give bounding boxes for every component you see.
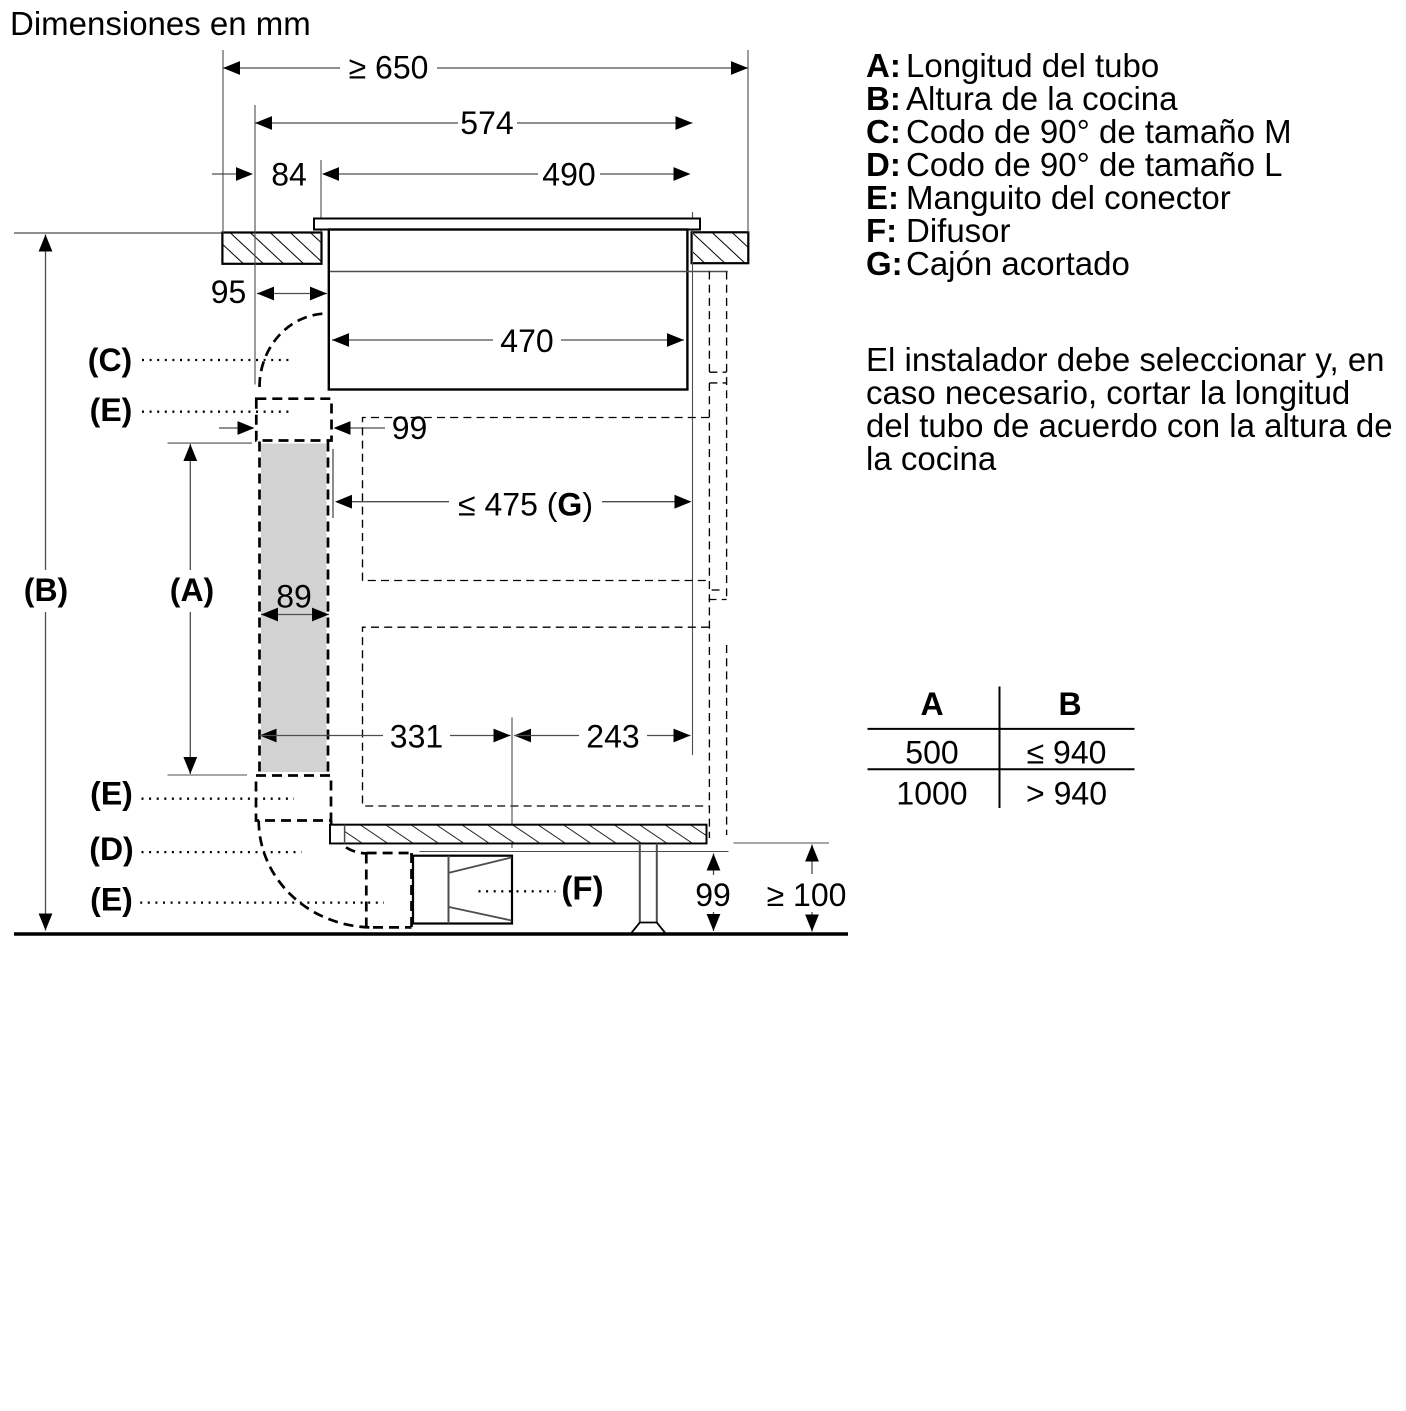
svg-text:Codo de 90° de tamaño M: Codo de 90° de tamaño M: [906, 113, 1292, 150]
svg-text:84: 84: [271, 157, 307, 193]
svg-text:≥ 650: ≥ 650: [349, 50, 429, 86]
svg-text:≤ 940: ≤ 940: [1027, 735, 1107, 771]
svg-text:Longitud del tubo: Longitud del tubo: [906, 47, 1159, 84]
svg-text:(E): (E): [90, 882, 133, 918]
svg-text:≤ 475 (G): ≤ 475 (G): [458, 487, 593, 523]
svg-text:D:: D:: [866, 146, 901, 183]
svg-text:≥ 100: ≥ 100: [767, 877, 847, 913]
svg-text:A:: A:: [866, 47, 901, 84]
svg-text:1000: 1000: [896, 776, 967, 812]
svg-text:El instalador debe seleccionar: El instalador debe seleccionar y, en: [866, 341, 1385, 378]
svg-text:89: 89: [276, 579, 312, 615]
svg-text:(E): (E): [90, 392, 133, 428]
svg-text:500: 500: [905, 735, 958, 771]
svg-text:Dimensiones en mm: Dimensiones en mm: [10, 5, 311, 42]
svg-text:95: 95: [211, 274, 247, 310]
svg-text:caso necesario, cortar la long: caso necesario, cortar la longitud: [866, 374, 1350, 411]
svg-text:99: 99: [695, 877, 731, 913]
svg-text:490: 490: [542, 157, 595, 193]
svg-text:(D): (D): [89, 831, 133, 867]
svg-text:Manguito del conector: Manguito del conector: [906, 179, 1231, 216]
svg-text:Altura de la cocina: Altura de la cocina: [906, 80, 1178, 117]
svg-text:(F): (F): [561, 870, 603, 907]
svg-text:B:: B:: [866, 80, 901, 117]
svg-text:> 940: > 940: [1026, 776, 1107, 812]
svg-text:(B): (B): [24, 572, 68, 608]
svg-text:B: B: [1058, 686, 1081, 722]
svg-text:243: 243: [586, 719, 639, 755]
svg-text:99: 99: [392, 410, 428, 446]
svg-text:Cajón acortado: Cajón acortado: [906, 245, 1130, 282]
svg-text:G:: G:: [866, 245, 903, 282]
svg-text:(C): (C): [88, 342, 132, 378]
svg-text:574: 574: [460, 105, 513, 141]
svg-text:(E): (E): [90, 776, 133, 812]
svg-text:470: 470: [500, 323, 553, 359]
svg-text:(A): (A): [170, 572, 214, 608]
svg-text:F:: F:: [866, 212, 897, 249]
svg-text:331: 331: [390, 719, 443, 755]
svg-text:Codo de 90° de tamaño L: Codo de 90° de tamaño L: [906, 146, 1282, 183]
svg-text:C:: C:: [866, 113, 901, 150]
svg-text:del tubo de acuerdo con la alt: del tubo de acuerdo con la altura de: [866, 407, 1393, 444]
svg-text:E:: E:: [866, 179, 899, 216]
svg-text:la cocina: la cocina: [866, 440, 997, 477]
svg-text:A: A: [920, 686, 943, 722]
svg-text:Difusor: Difusor: [906, 212, 1011, 249]
